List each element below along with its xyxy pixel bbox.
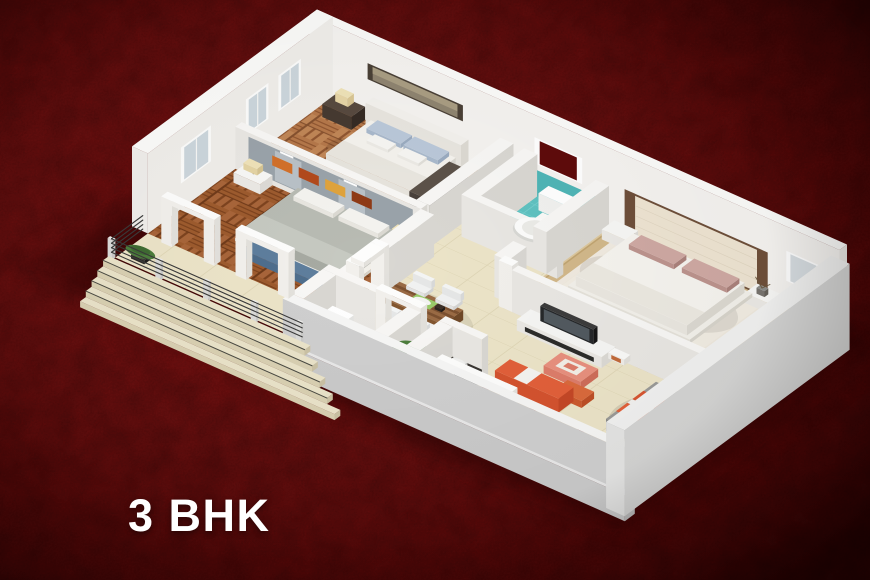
plan-title: 3 BHK bbox=[128, 490, 271, 542]
floorplan-3d-render: 3 BHK bbox=[0, 0, 870, 580]
